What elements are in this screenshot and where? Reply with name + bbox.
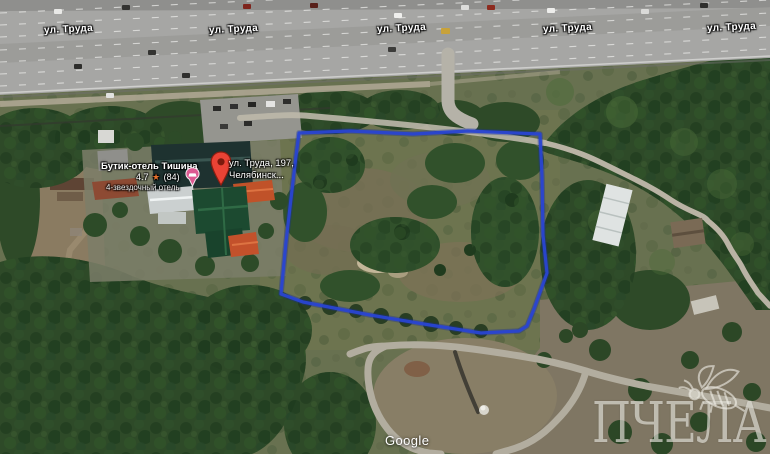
street-label: ул. Труда — [209, 23, 258, 36]
google-watermark[interactable]: Google — [385, 433, 429, 448]
address-line1: ул. Труда, 197, — [229, 158, 294, 170]
street-label: ул. Труда — [707, 21, 756, 34]
street-label: ул. Труда — [44, 23, 93, 36]
street-label: ул. Труда — [543, 22, 592, 35]
address-label: ул. Труда, 197, Челябинск... — [229, 158, 294, 181]
bed-glyph-icon — [189, 173, 197, 176]
star-icon: ★ — [151, 172, 161, 182]
map-canvas[interactable]: ул. Труда ул. Труда ул. Труда ул. Труда … — [0, 0, 770, 454]
lodging-pin-icon[interactable] — [185, 167, 200, 187]
address-line2: Челябинск... — [229, 170, 294, 182]
hotel-rating[interactable]: 4.7 ★ (84) — [136, 173, 180, 183]
review-count: (84) — [164, 172, 180, 182]
hotel-category: 4-звездочный отель — [106, 184, 180, 193]
rating-value: 4.7 — [136, 172, 149, 182]
satellite-imagery — [0, 0, 770, 454]
street-label: ул. Труда — [377, 22, 426, 35]
hotel-poi-name[interactable]: Бутик-отель Тишина — [101, 162, 198, 172]
